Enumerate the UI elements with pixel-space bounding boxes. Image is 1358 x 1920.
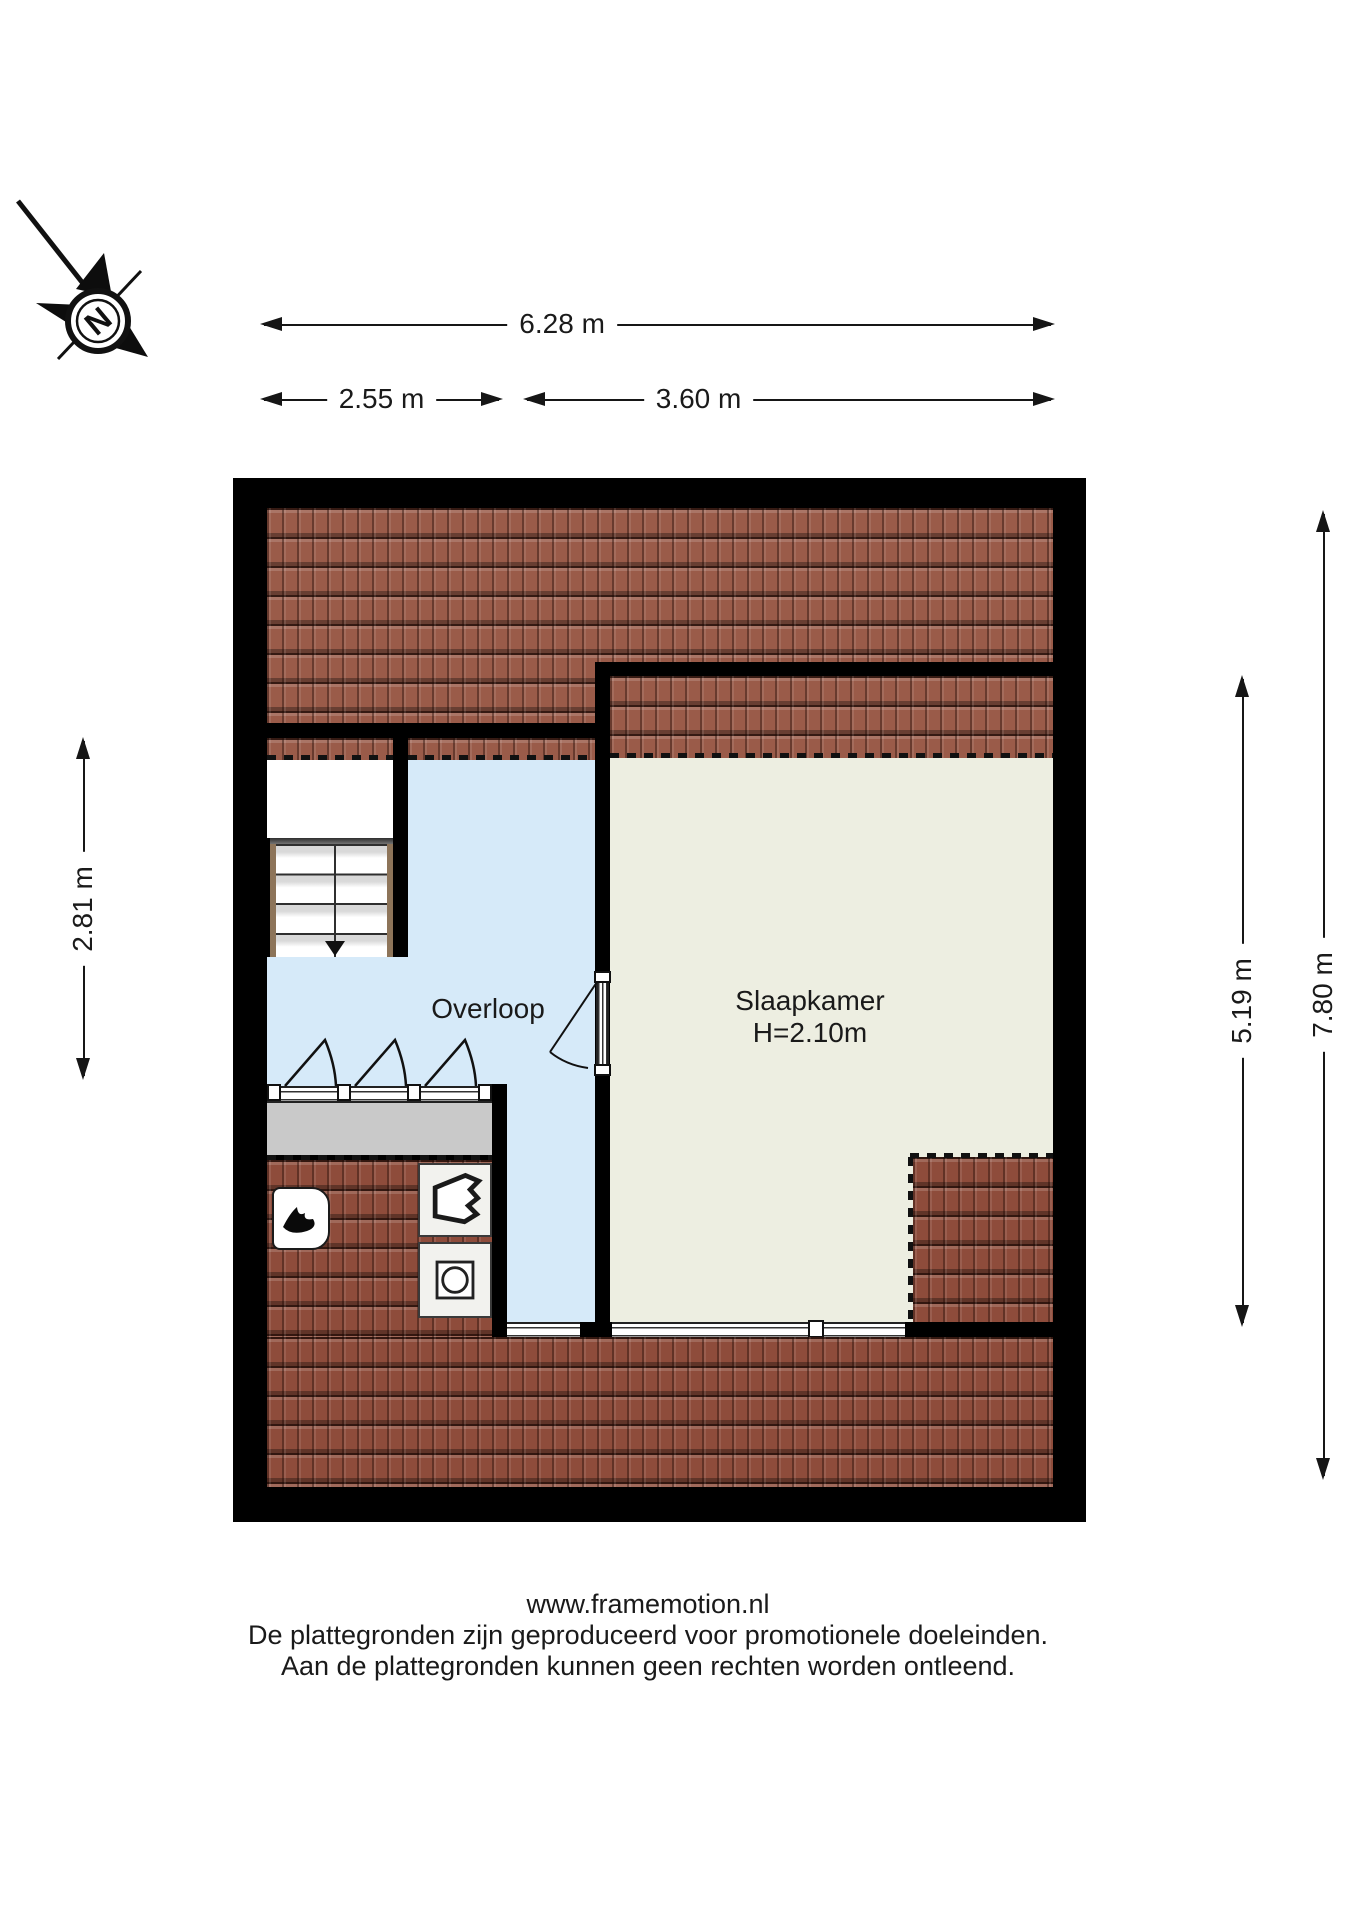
roof-bottom <box>267 1337 1053 1487</box>
washing-machine <box>418 1242 492 1318</box>
roof-window-swing-icon <box>283 1036 339 1088</box>
arrow-up-icon <box>1316 510 1330 532</box>
roof-edge-dashed <box>267 1155 492 1160</box>
window-post <box>267 1084 281 1101</box>
dimension-bedroom-depth: 5.19 m <box>1229 675 1255 1327</box>
washing-machine-icon <box>420 1244 490 1316</box>
slaapkamer-label: Slaapkamer <box>660 985 960 1017</box>
arrow-right-icon <box>1033 317 1055 331</box>
floorplan-page: N 6.28 m 2.55 m 3.60 m 2.81 m 5.19 m 7.8… <box>0 0 1358 1920</box>
dimension-total-depth: 7.80 m <box>1310 510 1336 1480</box>
dimension-label: 3.60 m <box>644 384 754 414</box>
bedroom-partition-wall <box>595 1075 610 1337</box>
arrow-down-icon <box>76 1058 90 1080</box>
boiler-unit <box>272 1187 330 1250</box>
dimension-line <box>527 399 1051 401</box>
arrow-right-icon <box>481 392 503 406</box>
bedroom-bottom-wall <box>905 1322 1053 1337</box>
window-post <box>808 1320 824 1338</box>
dimension-label: 2.81 m <box>68 852 98 966</box>
arrow-up-icon <box>76 737 90 759</box>
roof-patch-edge-dashed <box>910 1153 1053 1158</box>
dimension-label: 5.19 m <box>1227 944 1257 1058</box>
dimension-label: 7.80 m <box>1308 938 1338 1052</box>
dimension-landing-depth: 2.81 m <box>70 737 96 1080</box>
bedroom-roof-patch <box>913 1157 1053 1322</box>
door-swing-arc-icon <box>520 960 620 1080</box>
footer-line-1: www.framemotion.nl <box>0 1589 1296 1620</box>
dimension-label: 2.55 m <box>327 384 437 414</box>
compass-rose-icon: N <box>8 185 163 365</box>
dimension-right-width: 3.60 m <box>523 385 1055 413</box>
window-post <box>478 1084 492 1101</box>
dimension-line <box>264 324 1051 326</box>
boiler-flame-icon <box>274 1189 328 1248</box>
slaapkamer-label-block: Slaapkamer H=2.10m <box>660 985 960 1049</box>
roof-window-swing-icon <box>353 1036 409 1088</box>
arrow-right-icon <box>1033 392 1055 406</box>
roof-patch-edge-dashed <box>908 1157 913 1322</box>
stairs <box>270 844 393 957</box>
landing-top-wall <box>267 723 610 738</box>
dimension-total-width: 6.28 m <box>260 310 1055 338</box>
arrow-up-icon <box>1235 675 1249 697</box>
room-overloop-floor <box>507 1087 595 1322</box>
arrow-down-icon <box>1235 1305 1249 1327</box>
footer-line-3: Aan de plattegronden kunnen geen rechten… <box>0 1651 1296 1682</box>
dimension-left-width: 2.55 m <box>260 385 503 413</box>
ventilation-unit <box>418 1163 492 1237</box>
bedroom-top-wall <box>595 662 1053 676</box>
slaapkamer-height-label: H=2.10m <box>660 1017 960 1049</box>
dormer-side-wall <box>492 1084 507 1337</box>
bedroom-roof-strip <box>610 676 1053 758</box>
arrow-left-icon <box>523 392 545 406</box>
footer-line-2: De plattegronden zijn geproduceerd voor … <box>0 1620 1296 1651</box>
footer: www.framemotion.nl De plattegronden zijn… <box>0 1589 1296 1682</box>
stairs-side-wall <box>393 723 408 960</box>
arrow-left-icon <box>260 317 282 331</box>
stairwell-void <box>267 760 393 838</box>
room-overloop-floor <box>408 760 595 957</box>
arrow-down-icon <box>1316 1458 1330 1480</box>
window-post <box>337 1084 351 1101</box>
ventilation-unit-icon <box>420 1165 490 1235</box>
window-post <box>407 1084 421 1101</box>
bedroom-partition-wall <box>595 662 610 972</box>
dimension-label: 6.28 m <box>507 309 617 339</box>
arrow-left-icon <box>260 392 282 406</box>
roof-window-swing-icon <box>423 1036 479 1088</box>
stairs-down-arrow-icon <box>325 941 345 956</box>
roof-window-row <box>267 1086 492 1103</box>
dormer-strip <box>267 1098 492 1155</box>
